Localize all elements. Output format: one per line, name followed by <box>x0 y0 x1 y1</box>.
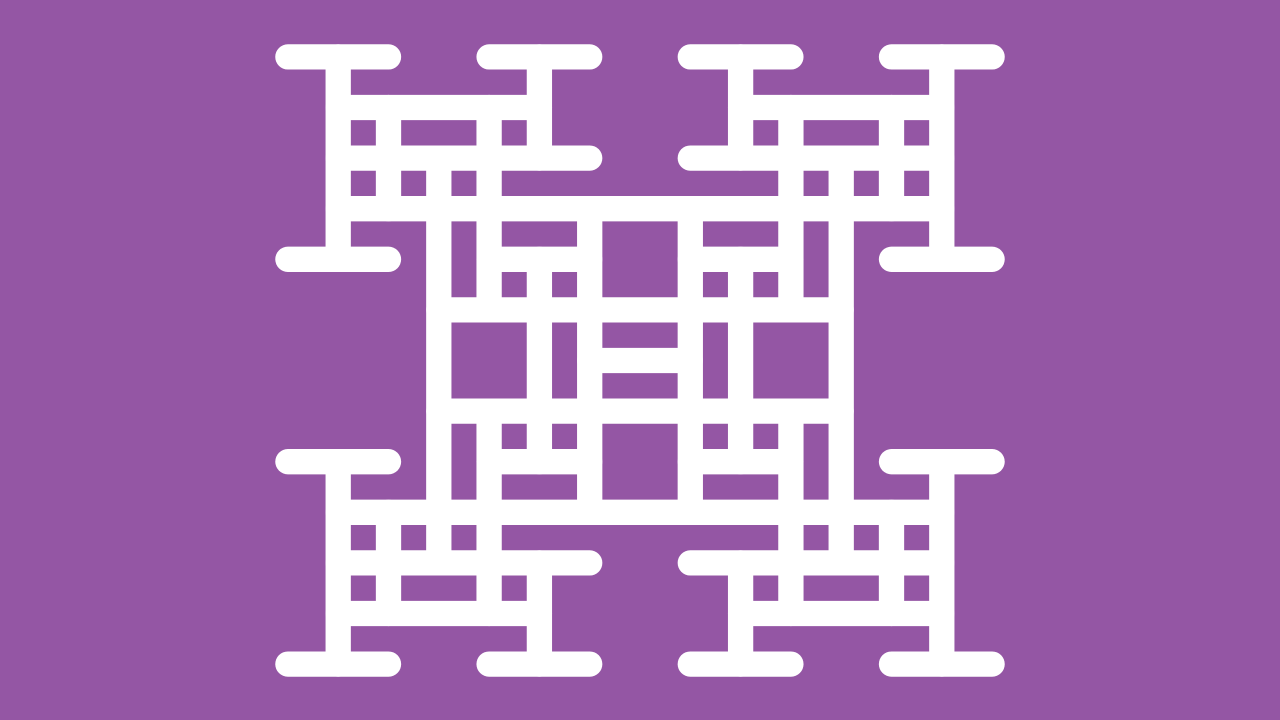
fractal-figure <box>0 0 1280 720</box>
fractal-canvas <box>0 0 1280 720</box>
